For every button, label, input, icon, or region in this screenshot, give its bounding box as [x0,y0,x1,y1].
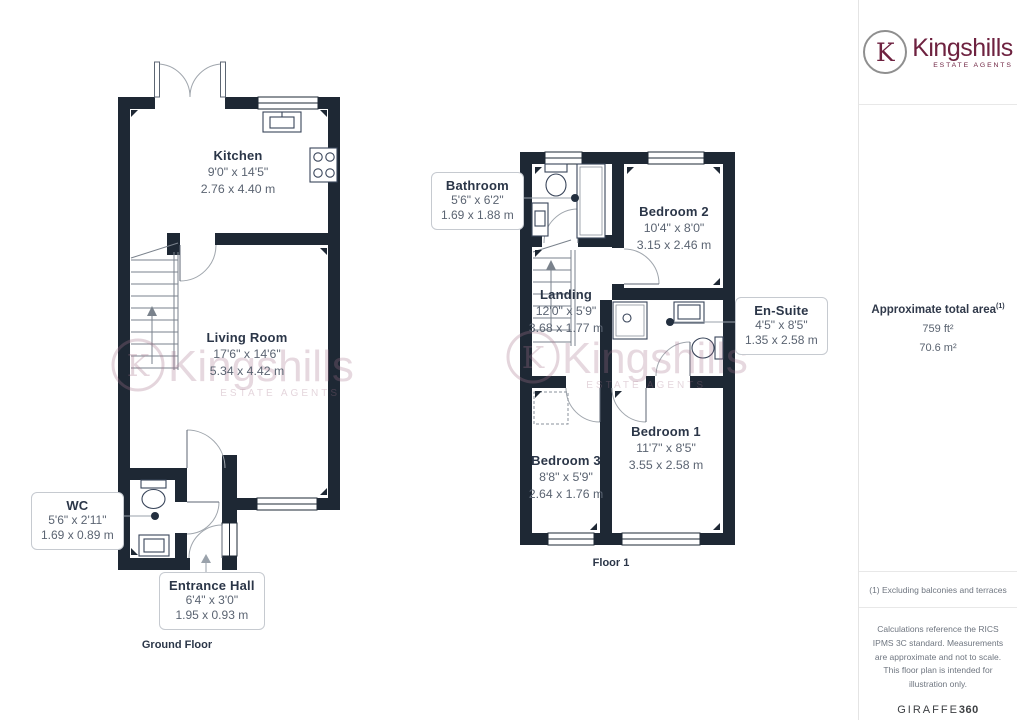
room-label-landing: Landing 12'0" x 5'9" 3.68 x 1.77 m [529,287,604,336]
wardrobe-icon [534,392,568,424]
area-summary: Approximate total area(1) 759 ft² 70.6 m… [859,105,1017,572]
room-label-bedroom-2: Bedroom 2 10'4" x 8'0" 3.15 x 2.46 m [637,204,712,253]
room-dim-imperial: 5'6" x 2'11" [41,513,114,528]
watermark-name: Kingshills [562,334,748,383]
room-dim-imperial: 4'5" x 8'5" [745,318,818,333]
room-label-kitchen: Kitchen 9'0" x 14'5" 2.76 x 4.40 m [201,148,276,197]
area-footnote: (1) Excluding balconies and terraces [859,572,1017,608]
logo-monogram: K [876,40,895,65]
toilet-icon [545,164,567,196]
room-label-bedroom-3: Bedroom 3 8'8" x 5'9" 2.64 x 1.76 m [529,453,604,502]
room-dim-imperial: 9'0" x 14'5" [201,164,276,181]
area-title-text: Approximate total area [871,304,996,316]
basin-icon [532,203,548,236]
area-metric: 70.6 m² [859,342,1017,354]
room-dim-imperial: 5'6" x 6'2" [441,193,514,208]
room-dim-imperial: 11'7" x 8'5" [629,440,704,457]
logo-name: Kingshills [912,36,1013,61]
shower-icon [577,164,605,238]
toilet-icon [141,480,166,509]
room-dim-metric: 5.34 x 4.42 m [207,363,288,380]
room-dim-metric: 1.35 x 2.58 m [745,333,818,348]
room-dim-metric: 1.69 x 1.88 m [441,208,514,223]
watermark-tagline: ESTATE AGENTS [220,388,340,399]
provider-suffix: 360 [959,704,979,716]
room-name: En-Suite [745,303,818,318]
room-name: Bedroom 1 [629,424,704,440]
floorplan-page: K Kingshills ESTATE AGENTS [0,0,1018,720]
ground-floor-plan: K Kingshills ESTATE AGENTS [113,62,354,573]
room-name: Bedroom 3 [529,453,604,469]
area-imperial: 759 ft² [859,323,1017,335]
room-name: Bathroom [441,178,514,193]
room-dim-imperial: 6'4" x 3'0" [169,593,255,608]
basin-icon [139,535,169,556]
room-dim-metric: 2.64 x 1.76 m [529,486,604,503]
room-name: Kitchen [201,148,276,164]
room-dim-metric: 3.68 x 1.77 m [529,320,604,337]
provider-logo: GIRAFFE360 [859,704,1017,716]
watermark-monogram: K [522,341,545,376]
logo-tagline: ESTATE AGENTS [933,62,1013,69]
room-name: Living Room [207,330,288,346]
brand-logo: K Kingshills ESTATE AGENTS [859,0,1017,105]
room-dim-imperial: 8'8" x 5'9" [529,469,604,486]
room-dim-imperial: 17'6" x 14'6" [207,346,288,363]
room-dim-metric: 3.55 x 2.58 m [629,457,704,474]
french-door-icon [155,62,226,97]
room-dim-imperial: 12'0" x 5'9" [529,303,604,320]
logo-circle-icon: K [863,30,907,74]
floor-title-ground: Ground Floor [142,639,212,651]
basin-icon [674,302,704,323]
room-dim-imperial: 10'4" x 8'0" [637,220,712,237]
room-name: Entrance Hall [169,578,255,593]
callout-en-suite: En-Suite 4'5" x 8'5" 1.35 x 2.58 m [735,297,828,355]
callout-entrance-hall: Entrance Hall 6'4" x 3'0" 1.95 x 0.93 m [159,572,265,630]
room-dim-metric: 1.95 x 0.93 m [169,608,255,623]
disclaimer-text: Calculations reference the RICS IPMS 3C … [859,608,1017,692]
watermark-monogram: K [127,349,150,384]
provider-name: GIRAFFE [897,704,959,716]
room-label-bedroom-1: Bedroom 1 11'7" x 8'5" 3.55 x 2.58 m [629,424,704,473]
room-dim-metric: 3.15 x 2.46 m [637,237,712,254]
room-dim-metric: 2.76 x 4.40 m [201,181,276,198]
watermark-tagline: ESTATE AGENTS [586,380,706,391]
sink-icon [263,112,301,132]
room-dim-metric: 1.69 x 0.89 m [41,528,114,543]
room-name: Bedroom 2 [637,204,712,220]
area-footnote-marker: (1) [996,303,1005,310]
floor-title-first: Floor 1 [593,557,630,569]
room-name: WC [41,498,114,513]
callout-wc: WC 5'6" x 2'11" 1.69 x 0.89 m [31,492,124,550]
door-icons [180,245,225,558]
callout-bathroom: Bathroom 5'6" x 6'2" 1.69 x 1.88 m [431,172,524,230]
room-label-living-room: Living Room 17'6" x 14'6" 5.34 x 4.42 m [207,330,288,379]
info-sidebar: K Kingshills ESTATE AGENTS Approximate t… [858,0,1017,720]
area-title: Approximate total area(1) [859,303,1017,316]
room-name: Landing [529,287,604,303]
stove-icon [310,148,337,182]
